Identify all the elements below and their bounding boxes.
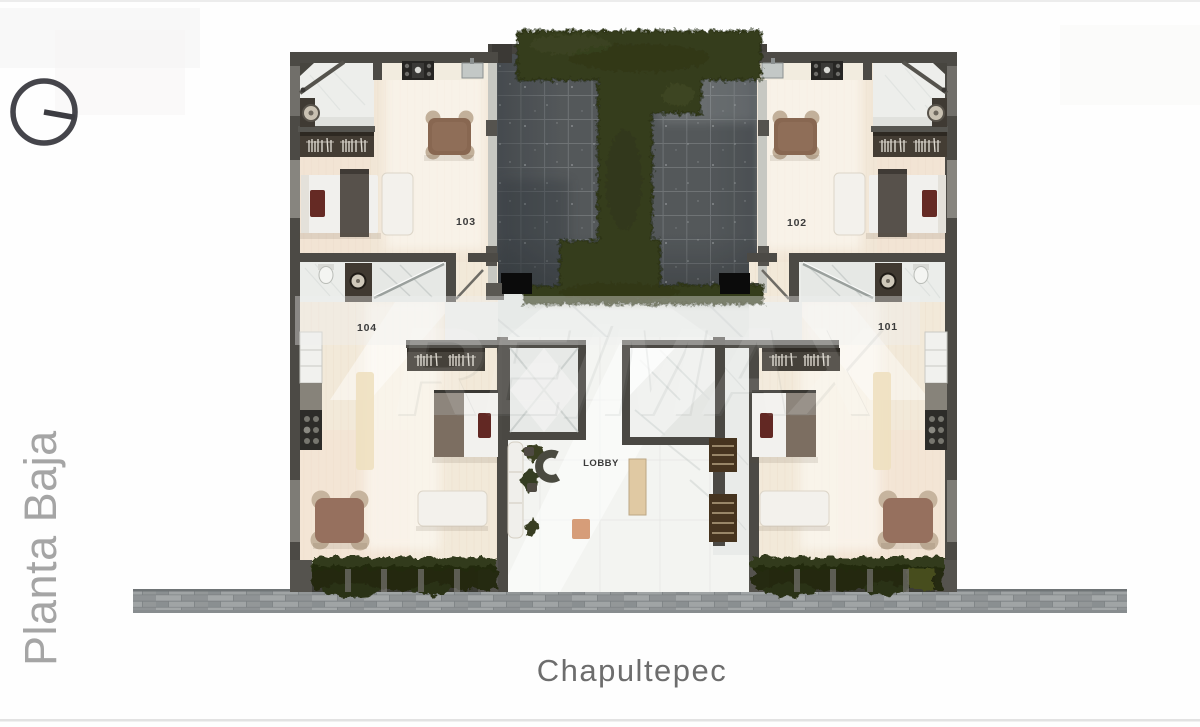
svg-text:103: 103 bbox=[456, 216, 476, 228]
svg-text:Planta Baja: Planta Baja bbox=[15, 430, 66, 666]
svg-text:104: 104 bbox=[357, 322, 377, 334]
svg-text:102: 102 bbox=[787, 217, 807, 229]
svg-text:RE/MAX: RE/MAX bbox=[394, 303, 883, 441]
svg-text:Chapultepec: Chapultepec bbox=[537, 653, 728, 688]
svg-text:LOBBY: LOBBY bbox=[583, 458, 619, 469]
svg-text:101: 101 bbox=[878, 321, 898, 333]
